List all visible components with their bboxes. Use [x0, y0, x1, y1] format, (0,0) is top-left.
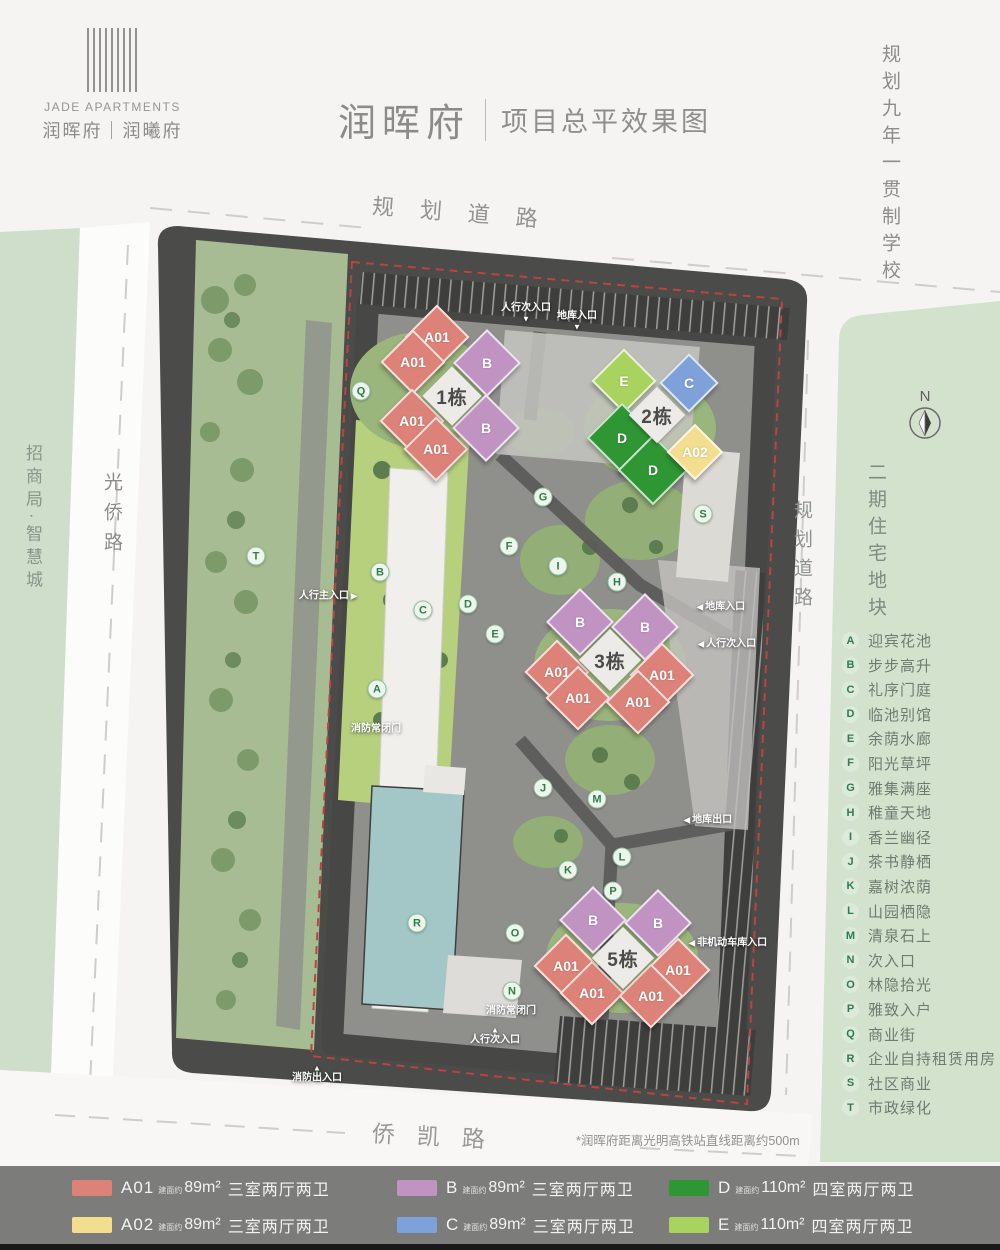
compass-n-label: N	[907, 388, 943, 405]
unit-description: 四室两厅两卫	[812, 1176, 914, 1200]
legend-item-label: 嘉树浓荫	[868, 876, 932, 897]
legend-key-badge: O	[842, 976, 859, 993]
legend-item-label: 清泉石上	[868, 925, 932, 946]
unit-color-swatch	[397, 1180, 437, 1196]
legend-item: C 礼序门庭	[842, 681, 996, 698]
unit-color-swatch	[669, 1217, 709, 1233]
unit-description: 四室两厅两卫	[812, 1213, 914, 1237]
label-right-road: 规划道路	[788, 500, 815, 616]
legend-item: F 阳光草坪	[842, 755, 996, 772]
unit-area: 89m²	[488, 1179, 524, 1197]
unit-legend-band: A01 建面约 89m² 三室两厅两卫 B 建面约 89m² 三室两厅两卫 D …	[0, 1166, 1000, 1250]
unit-area-prefix: 建面约	[735, 1185, 759, 1196]
legend-item: S 社区商业	[842, 1075, 996, 1092]
legend-key-badge: L	[842, 903, 859, 920]
legend-key-badge: K	[842, 878, 859, 895]
legend-item-label: 社区商业	[868, 1073, 932, 1094]
legend-item-label: 商业街	[868, 1024, 916, 1045]
unit-area: 89m²	[489, 1216, 525, 1234]
unit-color-swatch	[669, 1180, 709, 1196]
distance-note: *润晖府距离光明高铁站直线距离约500m	[576, 1130, 800, 1149]
legend-item: Q 商业街	[842, 1026, 996, 1043]
legend-item-label: 阳光草坪	[868, 753, 932, 774]
legend-item: J 茶书静栖	[842, 853, 996, 870]
unit-legend-item: C 建面约 89m² 三室两厅两卫	[397, 1213, 669, 1237]
amenity-legend: A 迎宾花池 B 步步高升 C 礼序门庭 D 临池别馆 E 余荫水廊 F 阳光草…	[842, 632, 996, 1116]
project-name: 润晖府	[338, 92, 470, 147]
unit-area: 89m²	[184, 1179, 220, 1197]
legend-item: B 步步高升	[842, 657, 996, 674]
compass: N	[907, 388, 943, 445]
legend-item: H 稚童天地	[842, 804, 996, 821]
unit-legend-item: D 建面约 110m² 四室两厅两卫	[669, 1176, 914, 1200]
label-left-road: 光侨路	[98, 472, 125, 562]
compass-icon	[908, 406, 942, 440]
legend-key-badge: I	[842, 829, 859, 846]
legend-item: R 企业自持租赁用房	[842, 1050, 996, 1067]
legend-item-label: 林隐拾光	[868, 974, 932, 995]
site-plan-page: JADE APARTMENTS 润晖府｜润曦府 润晖府 项目总平效果图 规划九年…	[0, 0, 1000, 1250]
unit-color-swatch	[397, 1217, 437, 1233]
legend-key-badge: P	[842, 1001, 859, 1018]
brand-name-en: JADE APARTMENTS	[40, 100, 185, 114]
legend-item-label: 临池别馆	[868, 704, 932, 725]
unit-code: A02	[121, 1215, 154, 1235]
legend-item-label: 稚童天地	[868, 802, 932, 823]
unit-area: 110m²	[760, 1216, 804, 1234]
legend-key-badge: C	[842, 681, 859, 698]
brand-name-cn: 润晖府｜润曦府	[40, 117, 185, 143]
legend-item: L 山园栖隐	[842, 903, 996, 920]
unit-area-prefix: 建面约	[462, 1185, 486, 1196]
unit-description: 三室两厅两卫	[532, 1176, 634, 1200]
unit-code: E	[718, 1215, 730, 1235]
unit-legend: A01 建面约 89m² 三室两厅两卫 B 建面约 89m² 三室两厅两卫 D …	[72, 1176, 914, 1237]
unit-color-swatch	[72, 1217, 112, 1233]
unit-area-prefix: 建面约	[158, 1185, 182, 1196]
unit-legend-item: B 建面约 89m² 三室两厅两卫	[397, 1176, 669, 1200]
legend-item: A 迎宾花池	[842, 632, 996, 649]
legend-item-label: 雅致入户	[868, 999, 932, 1020]
legend-item-label: 余荫水廊	[868, 728, 932, 749]
unit-description: 三室两厅两卫	[228, 1213, 330, 1237]
legend-item: O 林隐拾光	[842, 976, 996, 993]
legend-item: K 嘉树浓荫	[842, 878, 996, 895]
legend-item-label: 企业自持租赁用房	[868, 1048, 996, 1069]
legend-item-label: 茶书静栖	[868, 851, 932, 872]
legend-item-label: 次入口	[868, 950, 916, 971]
legend-item-label: 香兰幽径	[868, 827, 932, 848]
unit-area: 110m²	[761, 1179, 805, 1197]
legend-key-badge: N	[842, 952, 859, 969]
unit-area-prefix: 建面约	[734, 1222, 758, 1233]
legend-key-badge: T	[842, 1099, 859, 1116]
brand-logo: JADE APARTMENTS 润晖府｜润曦府	[40, 28, 185, 143]
unit-code: D	[718, 1178, 731, 1198]
unit-description: 三室两厅两卫	[228, 1176, 330, 1200]
legend-item-label: 市政绿化	[868, 1097, 932, 1118]
legend-key-badge: R	[842, 1050, 859, 1067]
legend-key-badge: A	[842, 632, 859, 649]
jade-building-icon	[87, 28, 139, 92]
title-divider	[485, 99, 486, 141]
unit-code: C	[446, 1215, 459, 1235]
unit-area: 89m²	[184, 1216, 220, 1234]
unit-description: 三室两厅两卫	[533, 1213, 635, 1237]
legend-key-badge: M	[842, 927, 859, 944]
label-west-block: 招商局·智慧城	[20, 444, 45, 594]
page-title: 润晖府 项目总平效果图	[338, 92, 711, 147]
unit-code: B	[446, 1178, 458, 1198]
legend-item: D 临池别馆	[842, 706, 996, 723]
label-school: 规划九年一贯制学校	[876, 44, 903, 287]
legend-item: G 雅集满座	[842, 780, 996, 797]
legend-item: M 清泉石上	[842, 927, 996, 944]
legend-key-badge: B	[842, 657, 859, 674]
unit-color-swatch	[72, 1180, 112, 1196]
unit-legend-item: A02 建面约 89m² 三室两厅两卫	[72, 1213, 397, 1237]
legend-key-badge: D	[842, 706, 859, 723]
unit-code: A01	[121, 1178, 154, 1198]
unit-area-prefix: 建面约	[158, 1222, 182, 1233]
legend-item-label: 礼序门庭	[868, 679, 932, 700]
legend-key-badge: E	[842, 730, 859, 747]
label-east-block: 二期住宅地块	[862, 462, 889, 624]
legend-key-badge: J	[842, 853, 859, 870]
unit-area-prefix: 建面约	[463, 1222, 487, 1233]
unit-legend-item: E 建面约 110m² 四室两厅两卫	[669, 1213, 914, 1237]
legend-key-badge: H	[842, 804, 859, 821]
legend-key-badge: Q	[842, 1026, 859, 1043]
drawing-type: 项目总平效果图	[501, 100, 711, 139]
legend-item: E 余荫水廊	[842, 730, 996, 747]
legend-item: I 香兰幽径	[842, 829, 996, 846]
legend-key-badge: G	[842, 780, 859, 797]
legend-key-badge: S	[842, 1075, 859, 1092]
legend-item: T 市政绿化	[842, 1099, 996, 1116]
legend-key-badge: F	[842, 755, 859, 772]
legend-item: P 雅致入户	[842, 1001, 996, 1018]
legend-item-label: 山园栖隐	[868, 901, 932, 922]
legend-item-label: 迎宾花池	[868, 630, 932, 651]
legend-item: N 次入口	[842, 952, 996, 969]
unit-legend-item: A01 建面约 89m² 三室两厅两卫	[72, 1176, 397, 1200]
label-bottom-road: 侨凯路	[371, 1114, 508, 1155]
legend-item-label: 雅集满座	[868, 778, 932, 799]
legend-item-label: 步步高升	[868, 655, 932, 676]
